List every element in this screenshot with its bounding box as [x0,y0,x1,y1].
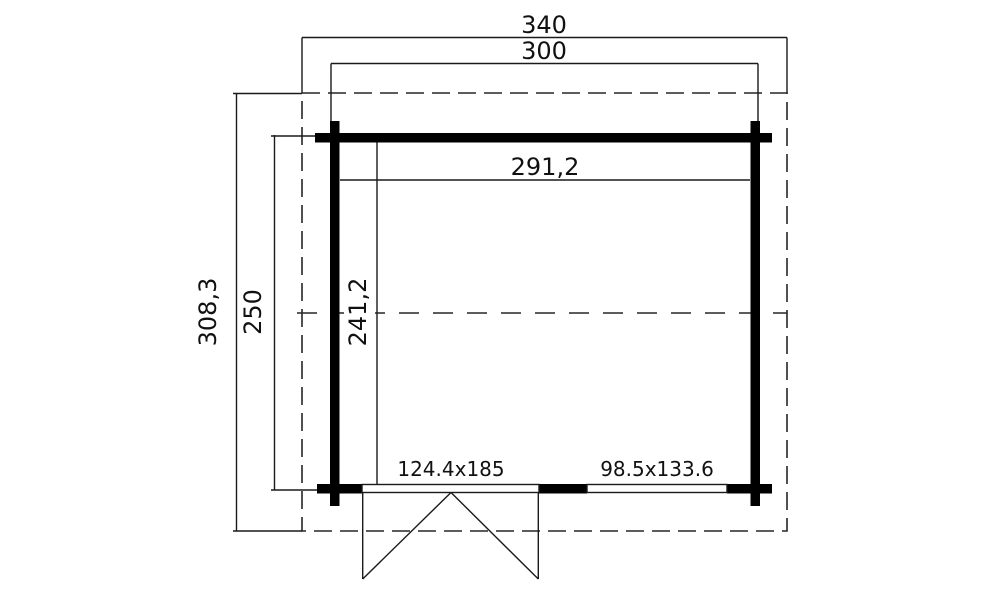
door-frame [362,485,539,493]
dim-label-wall-width: 300 [521,37,567,65]
dim-label-wall-depth: 250 [239,289,267,335]
dim-label-roof-depth: 308,3 [194,278,222,347]
window-frame [587,485,727,493]
dim-label-inner-depth: 241,2 [344,278,372,347]
door-swing-left [363,493,451,580]
window-group [587,485,727,493]
wall-right [751,121,761,506]
dim-label-inner-width: 291,2 [511,153,580,181]
floor-plan-page: 340 300 291,2 308,3 250 241,2 124.4x185 … [0,0,1000,600]
window-size-label: 98.5x133.6 [600,457,714,481]
door-size-label: 124.4x185 [397,457,504,481]
wall-bottom-left-segment [317,484,362,494]
wall-bottom-middle-segment [539,484,587,494]
floor-plan-canvas: 340 300 291,2 308,3 250 241,2 124.4x185 … [0,0,1000,600]
wall-top [315,133,772,143]
wall-bottom-right-segment [727,484,772,494]
wall-left [330,121,340,506]
door-swing-right [451,493,538,580]
dimension-labels: 340 300 291,2 308,3 250 241,2 124.4x185 … [194,11,714,481]
dim-label-roof-width: 340 [521,11,567,39]
